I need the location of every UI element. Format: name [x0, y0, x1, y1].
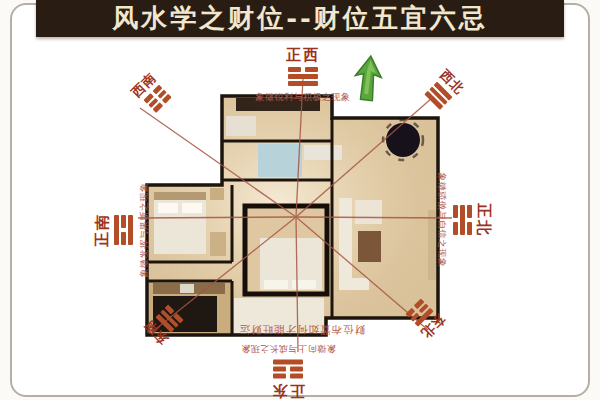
desk [210, 232, 226, 256]
pillow [264, 280, 288, 289]
page-title: 风水学之财位--财位五宜六忌 [112, 1, 488, 36]
direction-south-label: 正南 [94, 213, 110, 247]
direction-north-caption: 象徵骄傲与自信之现象 [436, 173, 449, 268]
pillow [158, 203, 178, 213]
trigram-west-icon [288, 65, 318, 89]
nightstand [210, 188, 224, 200]
direction-north-label: 正北 [476, 203, 492, 237]
bathtub [304, 145, 342, 160]
direction-south: 正南 象徵发挥与果断之现象 [94, 175, 142, 285]
direction-west-label: 正西 [286, 47, 320, 63]
direction-east: 正东 象徵向上与成长之现象 [223, 342, 353, 399]
kitchen-sink [180, 284, 194, 293]
plan-note: 财位布置如何才能旺财运 [237, 322, 367, 336]
direction-west-caption: 象徵锐利与积极之现象 [256, 91, 351, 104]
trigram-south-icon [112, 215, 136, 245]
trigram-east-icon [273, 357, 303, 381]
direction-north: 正北 象徵骄傲与自信之现象 [438, 165, 492, 275]
sofa [339, 198, 352, 280]
direction-east-label: 正东 [271, 383, 305, 399]
green-up-arrow-icon [351, 54, 385, 104]
feng-shui-infographic: 风水学之财位--财位五宜六忌 [0, 0, 600, 400]
pillow [182, 203, 202, 213]
pillow [292, 280, 316, 289]
coffee-table [358, 231, 381, 262]
bathroom-tiles [258, 144, 302, 177]
direction-south-caption: 象徵发挥与果断之现象 [138, 183, 151, 278]
trigram-north-icon [451, 205, 475, 235]
direction-west: 正西 象徵锐利与积极之现象 [245, 47, 361, 104]
direction-east-caption: 象徵向上与成长之现象 [241, 342, 336, 355]
bed-left [154, 192, 206, 254]
round-rug [386, 123, 420, 157]
bed-left-headboard [154, 192, 206, 200]
dining-table [355, 200, 382, 224]
sofa-chaise [339, 278, 369, 290]
small-bed [226, 116, 256, 136]
title-bar: 风水学之财位--财位五宜六忌 [36, 0, 564, 37]
